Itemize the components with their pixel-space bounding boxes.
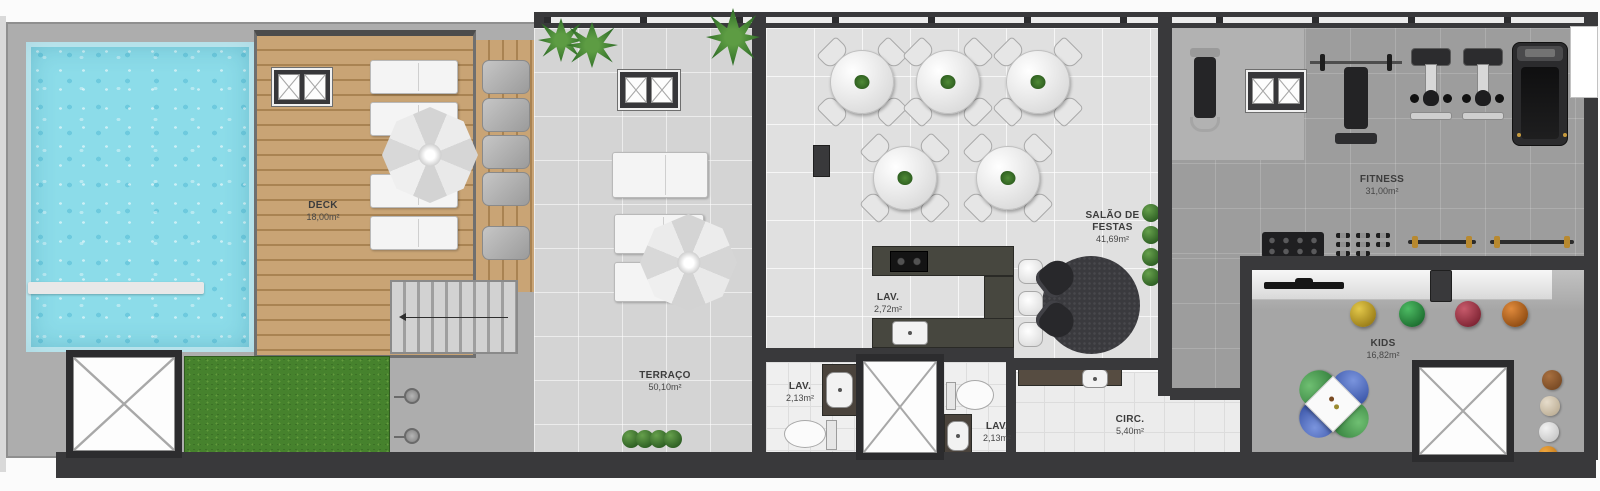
treadmill-screen [1525, 49, 1555, 57]
room-label-lav-right: LAV. 2,13m² [962, 421, 1032, 444]
window-sill [1570, 26, 1598, 98]
sideboard [813, 145, 830, 177]
bench-headrest [1190, 48, 1220, 57]
wall-circ-top [1008, 358, 1158, 370]
room-name: TERRAÇO [605, 370, 725, 382]
shaft-x-icon [304, 74, 326, 100]
room-area: 2,13m² [962, 433, 1032, 444]
room-name: LAV. [850, 292, 926, 304]
dumbbell-icon [1356, 251, 1370, 256]
toilet-tank [946, 382, 956, 410]
bush-icon [664, 430, 682, 448]
bench-feet [1190, 117, 1220, 132]
fitness-floor-extension [1170, 258, 1240, 390]
shaft-x-icon [1278, 78, 1300, 104]
room-name: FITNESS [1332, 174, 1432, 186]
room-area: 31,00m² [1332, 186, 1432, 197]
dining-table-set [819, 39, 905, 125]
barbell [1408, 240, 1476, 244]
dining-table-set [862, 135, 948, 221]
room-label-deck: DECK 18,00m² [283, 200, 363, 223]
grass-patch [184, 356, 390, 454]
treadmill-belt [1521, 67, 1559, 139]
wall-terrace-salon [752, 12, 766, 452]
room-name: LAV. [962, 421, 1032, 433]
room-area: 41,69m² [1060, 234, 1165, 245]
room-label-salao-de-festas: SALÃO DE FESTAS 41,69m² [1060, 210, 1165, 245]
room-label-lav-salao: LAV. 2,72m² [850, 292, 926, 315]
barbell-plate [1320, 54, 1325, 71]
bench-pad [1194, 57, 1216, 118]
dining-table-set [995, 39, 1081, 125]
sun-lounger [370, 60, 458, 94]
bike-pedal [1443, 94, 1452, 103]
room-name: LAV. [765, 381, 835, 393]
dining-table-set [965, 135, 1051, 221]
shaft-x-icon [651, 77, 673, 103]
shaft-x-icon [1252, 78, 1274, 104]
exercise-bike [1460, 48, 1506, 120]
bike-seat [1475, 90, 1491, 106]
double-lounger [612, 152, 708, 198]
dumbbell-icon [1356, 242, 1370, 247]
room-label-fitness: FITNESS 31,00m² [1332, 174, 1432, 197]
staircase [390, 280, 518, 354]
kids-door [1430, 270, 1452, 302]
room-label-circ: CIRC. 5,40m² [1085, 414, 1175, 437]
dumbbell-icon [1376, 233, 1390, 238]
barbell [1490, 240, 1574, 244]
room-name: KIDS [1337, 338, 1429, 350]
room-name: CIRC. [1085, 414, 1175, 426]
dumbbell-rack [1262, 232, 1324, 258]
room-name: SALÃO DE FESTAS [1060, 210, 1165, 234]
room-area: 5,40m² [1085, 426, 1175, 437]
bike-pedal [1410, 94, 1419, 103]
table-centerpiece [1001, 171, 1016, 185]
kitchen-sink-icon [892, 321, 928, 345]
exercise-bike [1408, 48, 1454, 120]
room-label-terraco: TERRAÇO 50,10m² [605, 370, 725, 393]
shaft-symbol-fitness [1246, 70, 1306, 112]
bench-cushion [482, 172, 530, 206]
shaft-symbol-terrace [618, 70, 680, 110]
bike-base [1462, 112, 1504, 120]
sun-lounger [370, 216, 458, 250]
table-centerpiece [898, 171, 913, 185]
elevator-hall [856, 354, 944, 460]
room-label-lav-left: LAV. 2,13m² [765, 381, 835, 404]
room-area: 2,13m² [765, 393, 835, 404]
bike-seat [1423, 90, 1439, 106]
dumbbell-set [1336, 230, 1406, 258]
wall-kids-left [1240, 256, 1252, 456]
bike-pedal [1462, 94, 1471, 103]
barbell-plate [1387, 54, 1392, 71]
room-area: 2,72m² [850, 304, 926, 315]
pouf-green [1399, 301, 1425, 327]
room-area: 50,10m² [605, 382, 725, 393]
dumbbell-icon [1376, 242, 1390, 247]
exterior-wall-top [534, 12, 1596, 28]
dining-table-set [905, 39, 991, 125]
wall-salon-fitness [1158, 12, 1172, 396]
toilet-icon [956, 380, 994, 410]
elevator-x-icon [73, 357, 175, 451]
dumbbell-icon [1356, 233, 1370, 238]
room-area: 16,82m² [1337, 350, 1429, 361]
teddy-bear-toy [1542, 370, 1562, 390]
pouf-yellow [1350, 301, 1376, 327]
elevator-x-icon [863, 361, 937, 453]
table-centerpiece [1031, 75, 1046, 89]
pouf-orange [1502, 301, 1528, 327]
floor-plan-canvas: DECK 18,00m² TERRAÇO 50,10m² SALÃO DE FE… [0, 0, 1600, 491]
room-area: 18,00m² [283, 212, 363, 223]
bench-cushion [482, 98, 530, 132]
table-centerpiece [855, 75, 870, 89]
weight-bench-machine [1190, 48, 1220, 132]
toilet-tank [826, 420, 837, 450]
tv-icon [1264, 282, 1344, 289]
shower-icon [404, 428, 420, 444]
bench-feet [1335, 133, 1377, 144]
room-label-kids: KIDS 16,82m² [1337, 338, 1429, 361]
shaft-x-icon [278, 74, 300, 100]
shrub-row [626, 430, 682, 448]
elevator-kids [1412, 360, 1514, 462]
cooktop-icon [890, 251, 928, 272]
exterior-wall-bottom [56, 452, 1596, 478]
pouf-red [1455, 301, 1481, 327]
window-strip [544, 17, 1586, 23]
dumbbell-icon [1336, 233, 1350, 238]
dumbbell-icon [1336, 251, 1350, 256]
wall-kids-top [1240, 256, 1596, 270]
drinking-fountain-icon [1082, 369, 1108, 388]
bench-cushion [482, 60, 530, 94]
treadmill [1512, 42, 1568, 146]
table-centerpiece [941, 75, 956, 89]
shaft-symbol-deck [272, 68, 332, 106]
toilet-icon [784, 420, 826, 448]
lamb-toy [1539, 422, 1559, 442]
bench-cushion [482, 135, 530, 169]
elevator-pool [66, 350, 182, 458]
shower-icon [404, 388, 420, 404]
bike-base [1410, 112, 1452, 120]
bench-cushion [482, 226, 530, 260]
swimming-pool [26, 42, 254, 352]
dumbbell-icon [1336, 242, 1350, 247]
bench-pad [1344, 67, 1368, 129]
bunny-toy [1540, 396, 1560, 416]
pool-ledge [28, 282, 204, 294]
bench-press [1310, 52, 1402, 144]
bike-pedal [1495, 94, 1504, 103]
room-name: DECK [283, 200, 363, 212]
elevator-x-icon [1419, 367, 1507, 455]
shaft-x-icon [625, 77, 647, 103]
